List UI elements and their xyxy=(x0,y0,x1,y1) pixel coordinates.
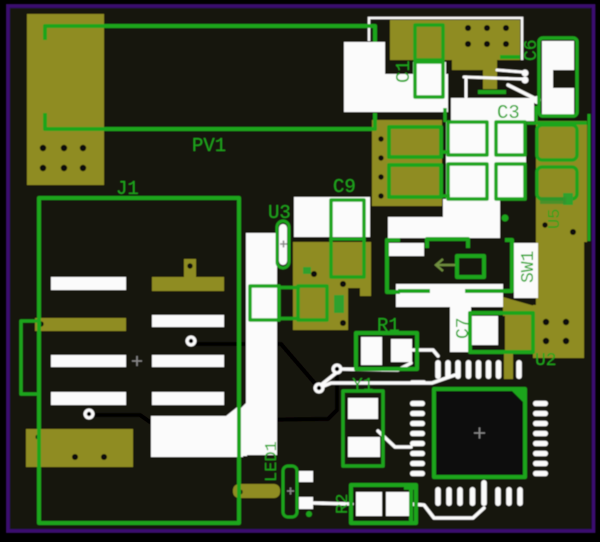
svg-text:C9: C9 xyxy=(333,176,356,198)
svg-text:C7: C7 xyxy=(454,317,474,339)
svg-text:Y1: Y1 xyxy=(352,376,374,396)
svg-text:U3: U3 xyxy=(268,202,291,224)
svg-text:C6: C6 xyxy=(522,39,542,61)
svg-text:R2: R2 xyxy=(334,494,353,514)
svg-text:LED1: LED1 xyxy=(263,441,282,482)
svg-text:SW1: SW1 xyxy=(519,251,539,283)
svg-text:R1: R1 xyxy=(377,315,400,337)
svg-text:C3: C3 xyxy=(497,102,520,124)
svg-text:J1: J1 xyxy=(116,178,139,200)
svg-text:U2: U2 xyxy=(535,351,557,371)
svg-text:C1: C1 xyxy=(393,60,415,83)
svg-text:U5: U5 xyxy=(546,209,565,229)
svg-text:PV1: PV1 xyxy=(192,135,226,157)
